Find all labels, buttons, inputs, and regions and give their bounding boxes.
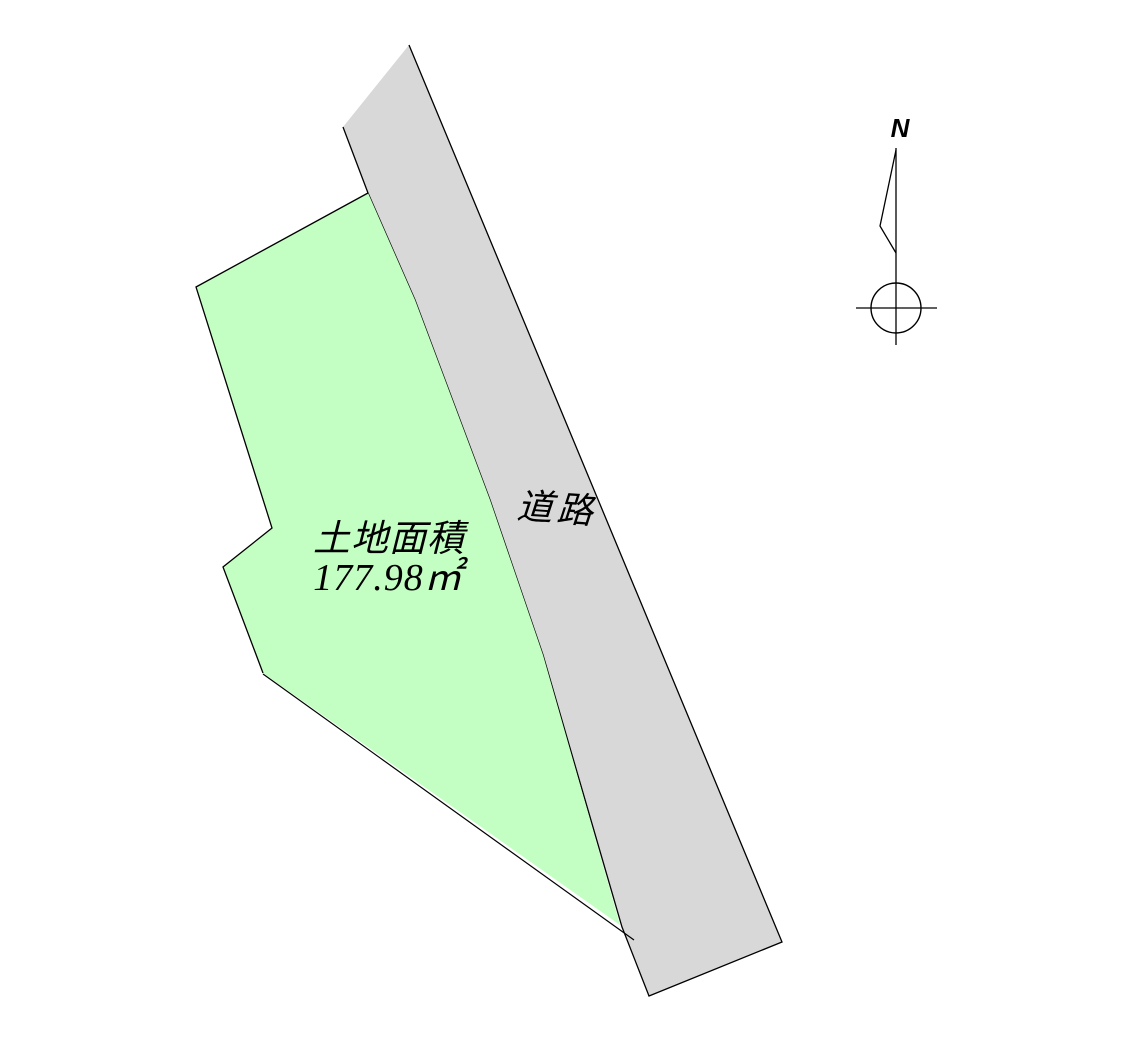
site-plan-canvas: 土地面積 177.98㎡ 道路 N [0,0,1136,1042]
road-label: 道路 [516,486,599,531]
parcel-area-value: 177.98㎡ [313,556,469,599]
north-indicator: N [856,113,937,345]
parcel-area-title: 土地面積 [313,519,469,560]
north-arrow-pennant [880,150,896,253]
site-plan-drawing: 土地面積 177.98㎡ 道路 N [0,0,1136,1042]
north-label: N [891,113,911,143]
